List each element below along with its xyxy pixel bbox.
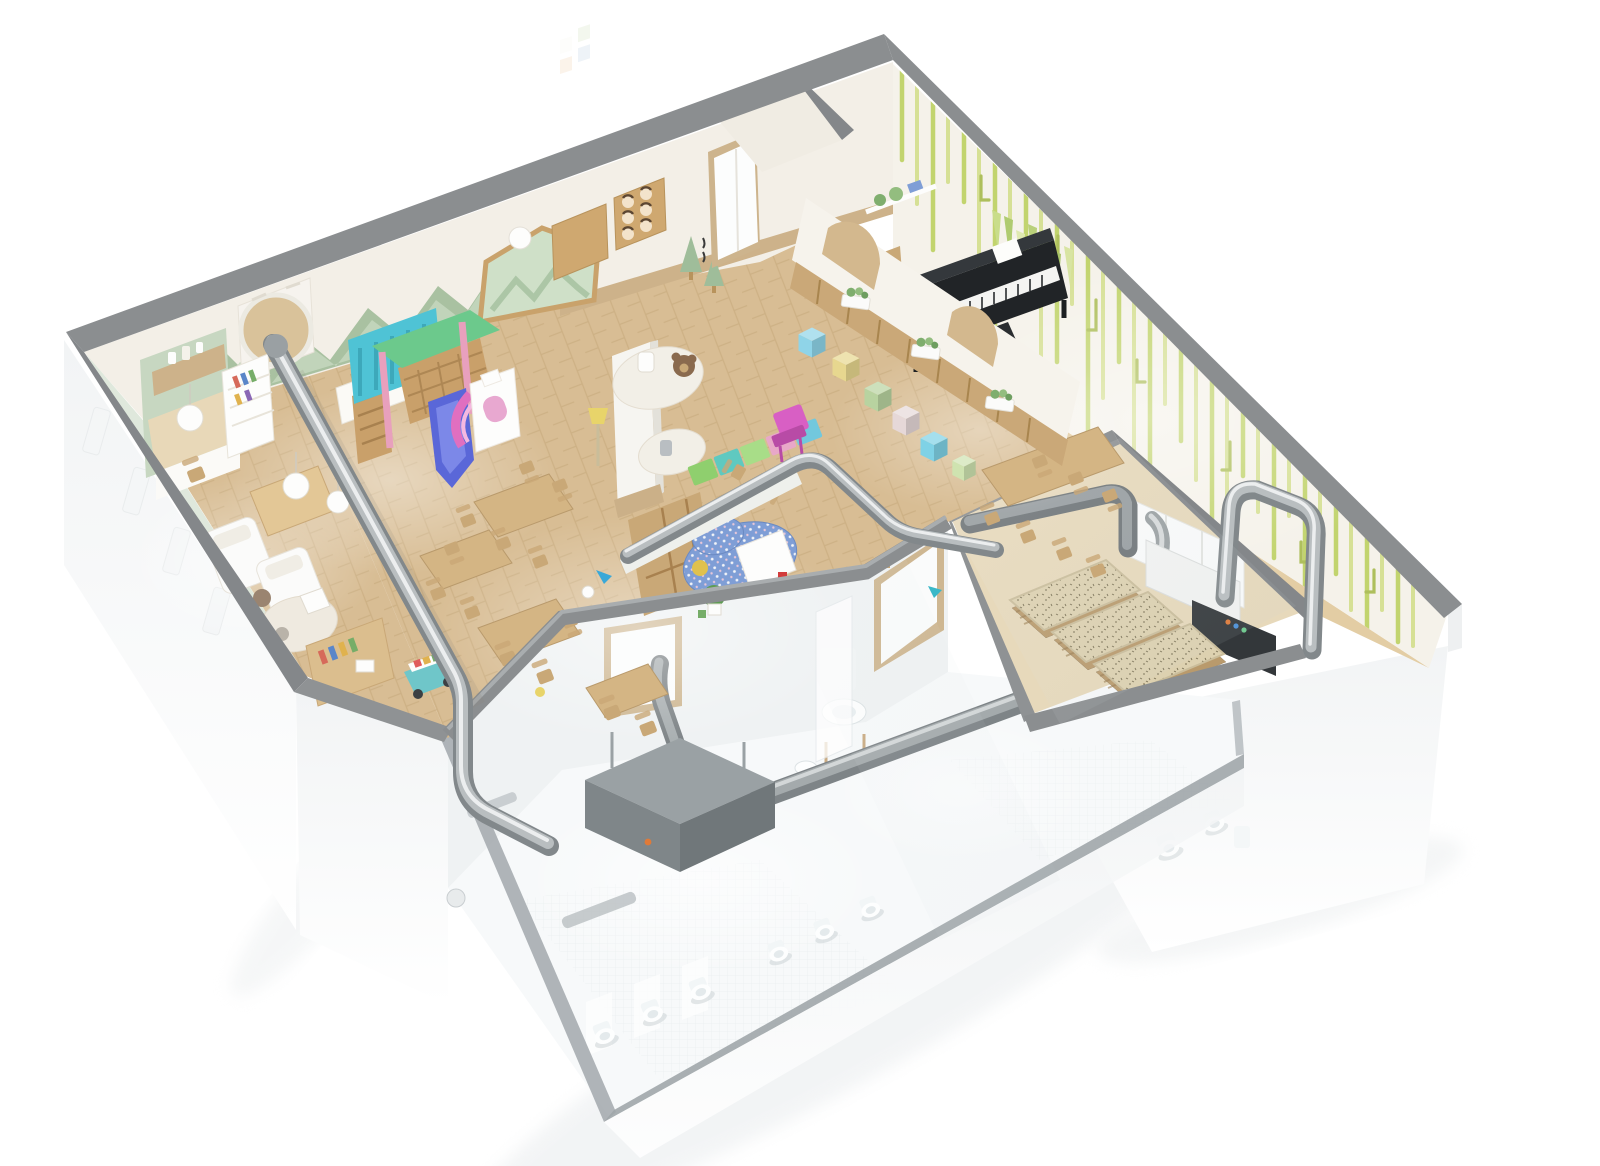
toy-radio <box>356 660 374 672</box>
block <box>698 610 706 618</box>
toy-bunny <box>582 586 594 598</box>
southwest-exterior-face <box>296 690 448 1005</box>
yellow-flowers <box>692 560 708 576</box>
render-stage: Kindergarten ventilation system - 3D cut… <box>0 0 1600 1166</box>
extractor-fan-grille <box>447 889 465 907</box>
pedestal-bin <box>1234 826 1250 848</box>
wall-clock <box>509 227 531 249</box>
ahu-indicator <box>645 839 652 846</box>
cutaway-render: Kindergarten ventilation system - 3D cut… <box>0 0 1600 1166</box>
toy-robot <box>660 440 672 456</box>
teddy-muzzle <box>680 364 689 373</box>
toy-horse <box>638 352 654 372</box>
toy-duck <box>535 687 545 697</box>
tall-bookcase <box>222 354 274 458</box>
duct-flange <box>264 334 288 358</box>
